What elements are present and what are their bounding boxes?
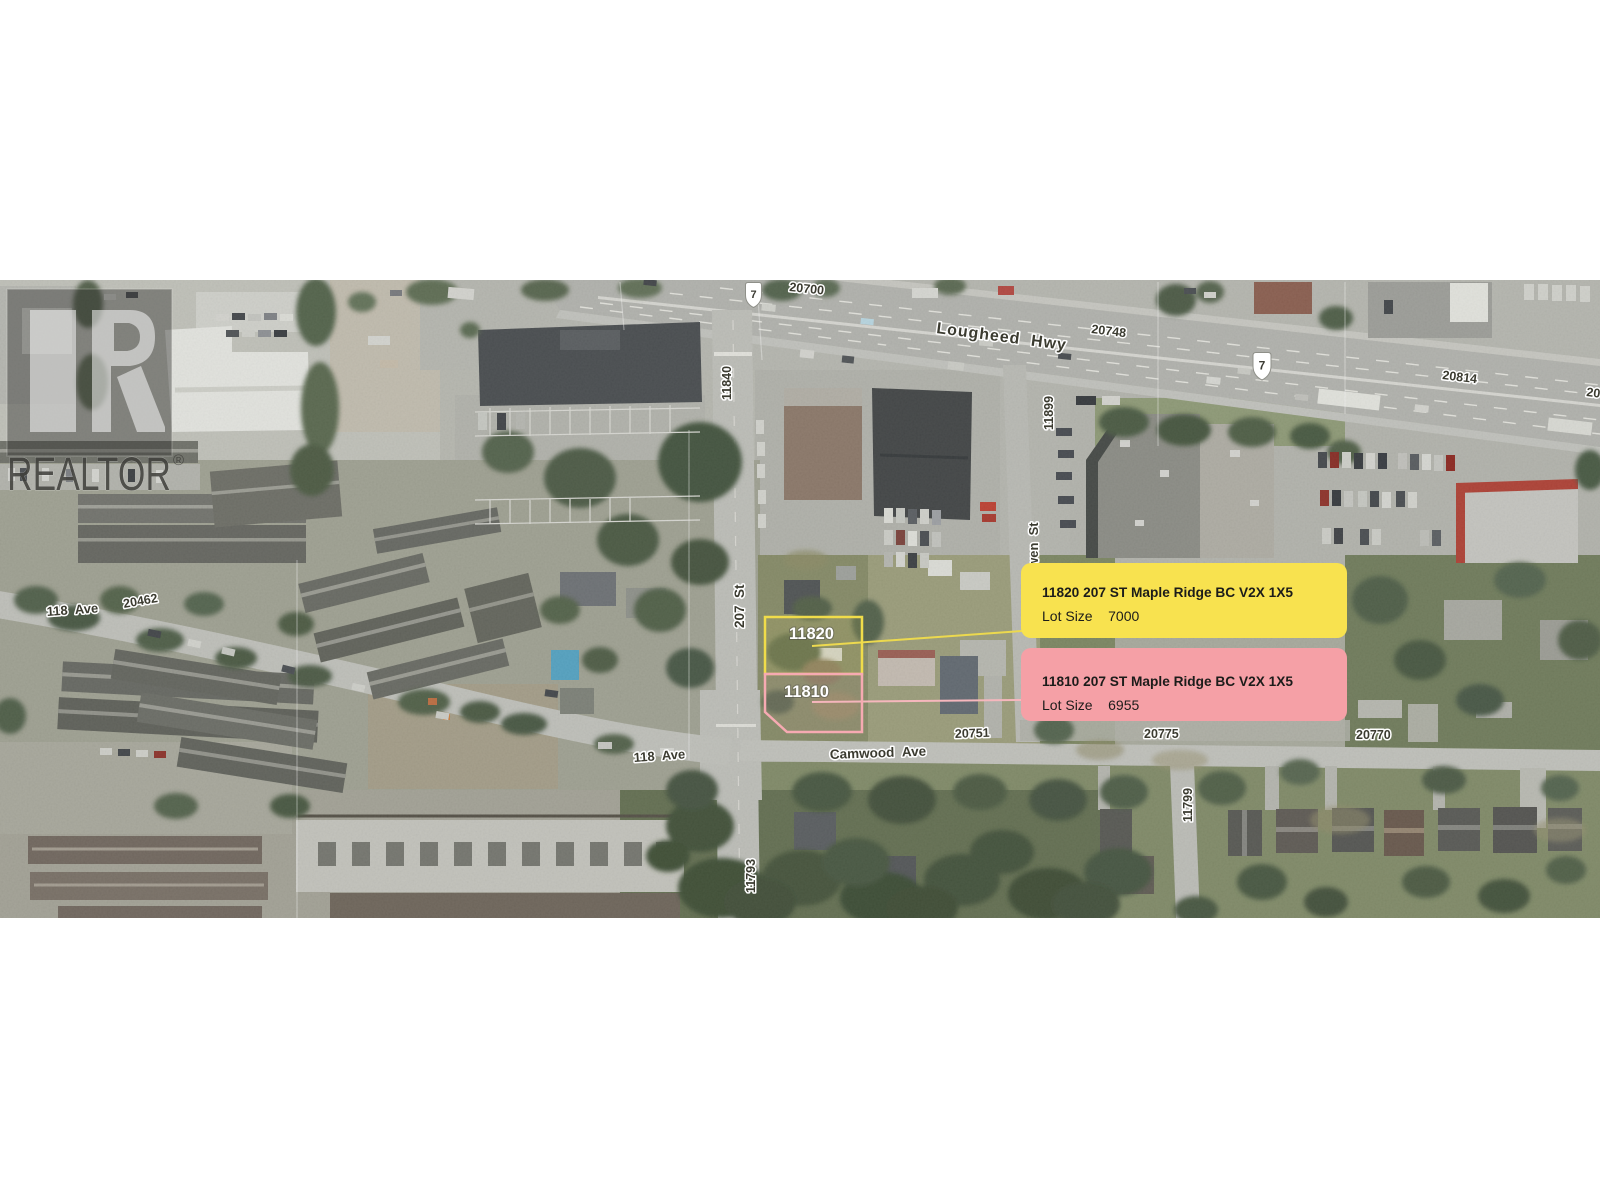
svg-text:11799: 11799 [1181,788,1195,822]
svg-text:11820: 11820 [789,625,834,643]
svg-text:11820 207 ST Maple Ridge BC V2: 11820 207 ST Maple Ridge BC V2X 1X5 [1042,584,1293,600]
svg-text:207 St: 207 St [732,584,747,628]
svg-text:20770: 20770 [1356,728,1391,742]
svg-text:®: ® [173,452,184,469]
svg-text:11899: 11899 [1042,396,1056,430]
svg-text:11810 207 ST Maple Ridge BC V2: 11810 207 ST Maple Ridge BC V2X 1X5 [1042,673,1293,689]
svg-text:Lot Size 7000: Lot Size 7000 [1042,608,1140,624]
svg-text:20: 20 [1586,385,1600,401]
svg-text:7: 7 [1259,359,1266,373]
svg-text:11810: 11810 [784,683,829,701]
svg-text:7: 7 [750,289,756,301]
svg-text:REALTOR: REALTOR [7,447,171,500]
svg-text:Lot Size 6955: Lot Size 6955 [1042,697,1140,713]
svg-text:11793: 11793 [744,859,758,893]
svg-text:20775: 20775 [1144,727,1179,741]
svg-text:20751: 20751 [955,726,990,741]
svg-text:11840: 11840 [720,366,734,400]
